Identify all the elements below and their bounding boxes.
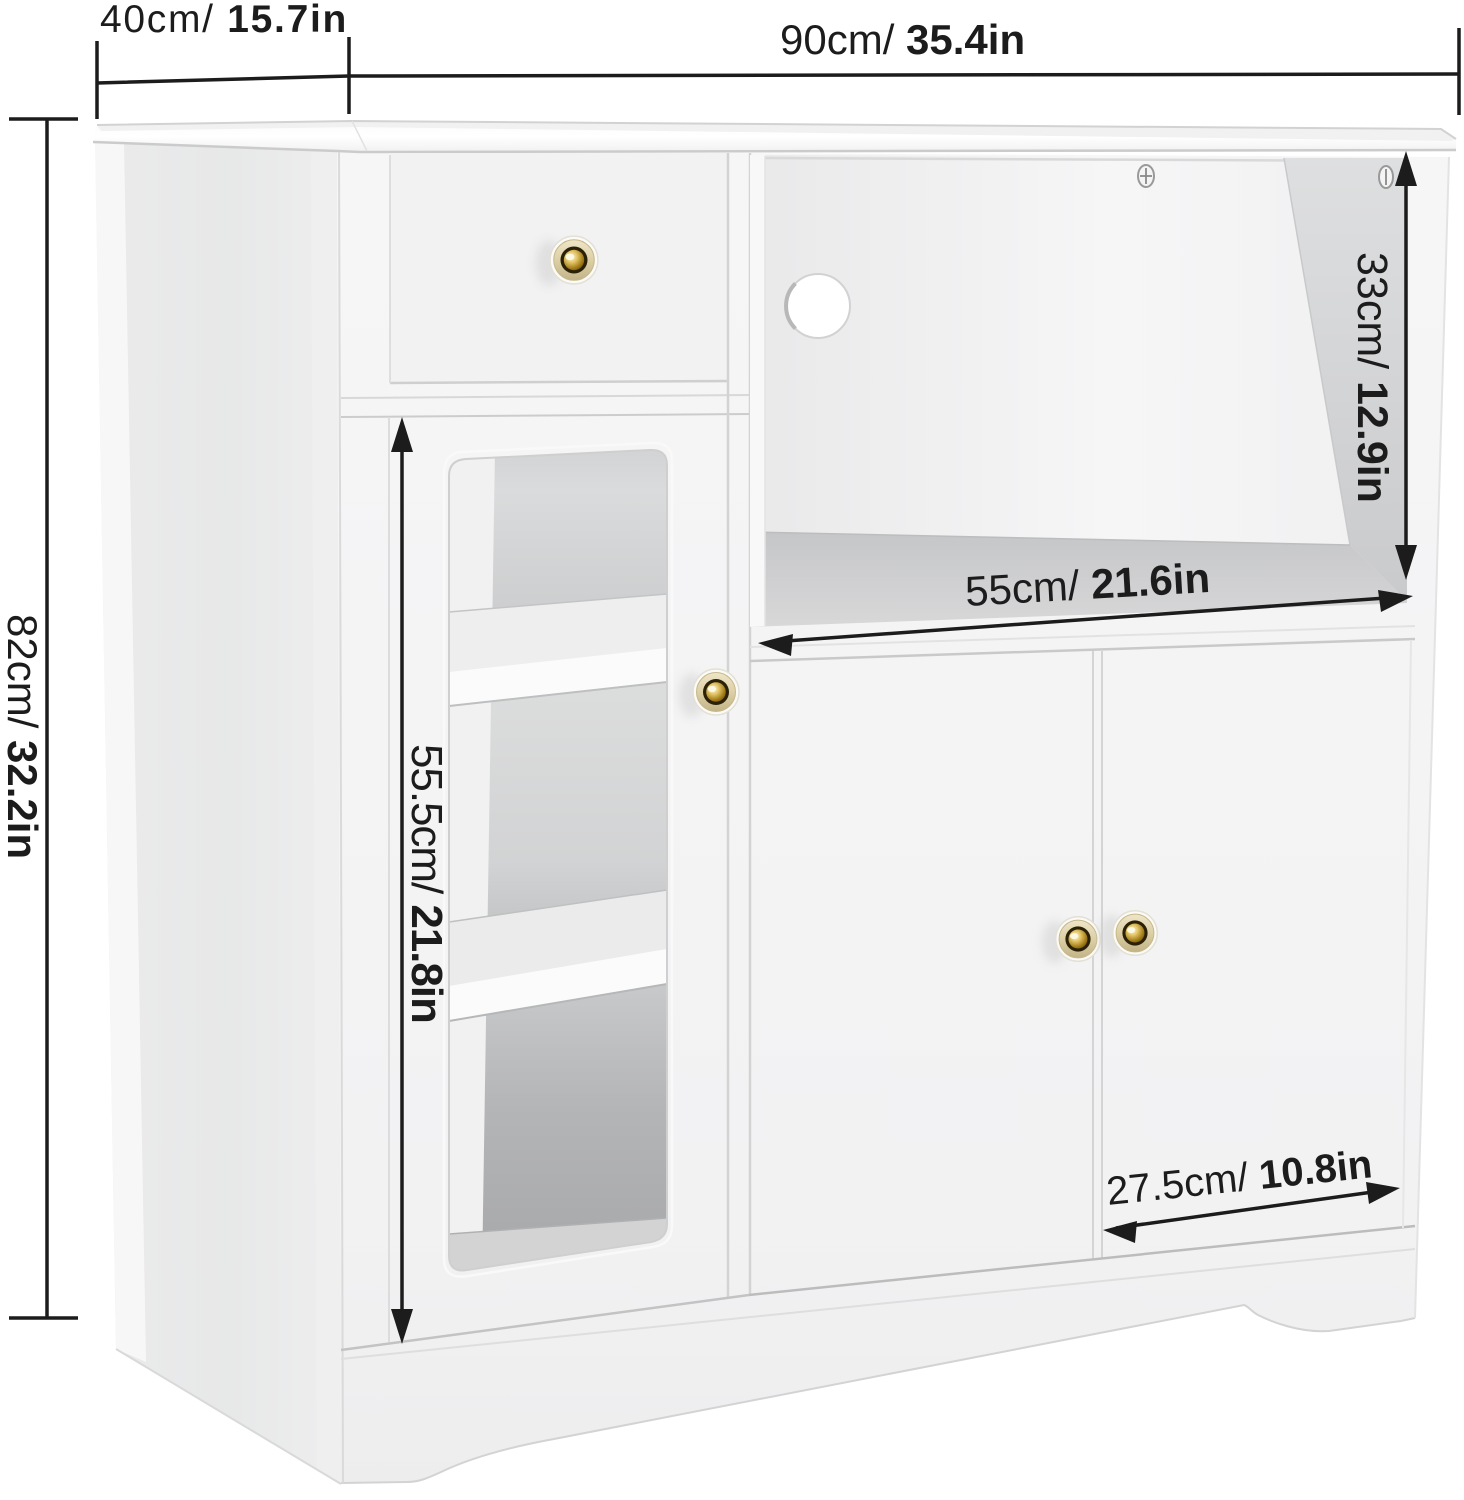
svg-text:55.5cm/ 21.8in: 55.5cm/ 21.8in <box>402 744 451 1023</box>
svg-text:40cm/ 15.7in: 40cm/ 15.7in <box>100 0 348 41</box>
svg-text:90cm/ 35.4in: 90cm/ 35.4in <box>780 16 1025 63</box>
svg-text:82cm/ 32.2in: 82cm/ 32.2in <box>0 614 46 859</box>
svg-text:33cm/ 12.9in: 33cm/ 12.9in <box>1348 252 1396 503</box>
